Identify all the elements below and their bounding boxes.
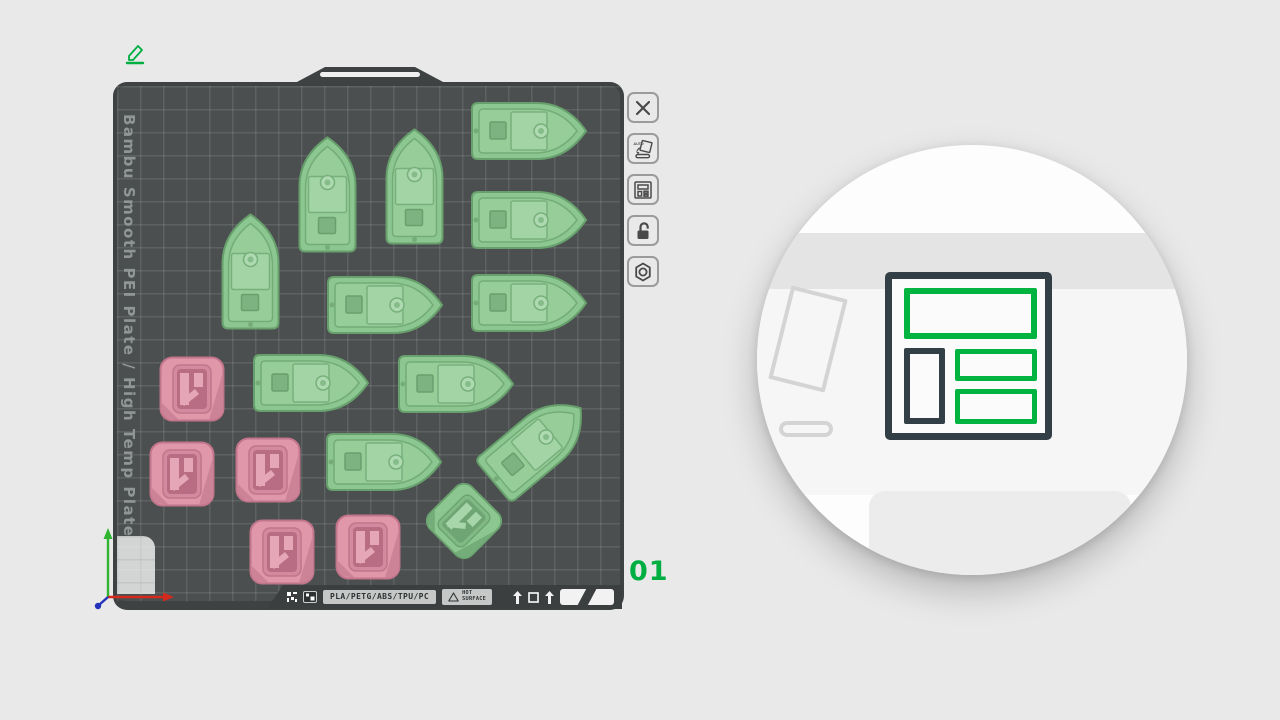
filament-compat-label: PLA/PETG/ABS/TPU/PC: [323, 590, 436, 604]
warning-triangle-icon: [448, 592, 459, 602]
plate-object-benchy-boat[interactable]: [394, 353, 517, 415]
plate-handle-tab: [295, 67, 445, 83]
magnifier-callout: [757, 145, 1187, 575]
ghost-auto-orient-bar: [779, 421, 833, 437]
arrange-icon-left-rect: [904, 348, 945, 424]
plate-footer: PLA/PETG/ABS/TPU/PC HOT SURFACE: [267, 585, 622, 609]
build-plate[interactable]: Bambu Smooth PEI Plate / High Temp Plate…: [113, 82, 624, 610]
qr-marker-icon: [287, 592, 297, 602]
lock-open-icon: [631, 219, 655, 243]
auto-orient-button[interactable]: AUTO: [627, 133, 659, 164]
plate-object-benchy-boat[interactable]: [219, 211, 281, 334]
z-axis-dot: [95, 603, 101, 609]
hot-surface-line2: SURFACE: [462, 597, 486, 603]
lift-arrow-icon: [545, 591, 554, 604]
qr-code-icon: [303, 591, 317, 603]
bambu-studio-plate-view: { "header": { "edit_icon": "pencil-icon"…: [0, 0, 1280, 720]
arrange-icon: [631, 178, 655, 202]
plate-object-benchy-boat[interactable]: [249, 352, 372, 414]
lift-arrow-icon: [513, 591, 522, 604]
filament-compat-text: PLA/PETG/ABS/TPU/PC: [330, 592, 429, 601]
plate-object-benchy-boat[interactable]: [323, 274, 446, 336]
plate-settings-button[interactable]: [627, 256, 659, 287]
plate-corner-mark: [560, 589, 614, 605]
plate-number-badge: 01: [629, 556, 669, 587]
plate-object-calibration-cube[interactable]: [335, 514, 401, 580]
plate-object-benchy-boat[interactable]: [467, 272, 590, 334]
plate-handle-slot: [320, 72, 420, 77]
edit-plate-name-pencil-icon[interactable]: [123, 40, 147, 66]
plate-object-calibration-cube[interactable]: [159, 356, 225, 422]
lock-plate-button[interactable]: [627, 215, 659, 246]
y-axis-arrow: [104, 528, 113, 539]
close-plate-button[interactable]: [627, 92, 659, 123]
magnified-arrange-icon: [885, 272, 1052, 440]
plate-outline-icon: [528, 592, 539, 603]
hot-surface-warning: HOT SURFACE: [442, 589, 492, 605]
plate-object-benchy-boat[interactable]: [296, 134, 358, 257]
arrange-icon-right-rect-2: [955, 389, 1037, 424]
plate-objects-layer: [117, 86, 620, 601]
arrange-icon-top-rect: [904, 288, 1037, 339]
auto-orient-icon: AUTO: [631, 137, 655, 161]
ghost-lock-icon: [869, 491, 1131, 575]
plate-object-calibration-cube[interactable]: [249, 519, 315, 585]
plate-object-calibration-cube[interactable]: [235, 437, 301, 503]
plate-object-calibration-cube[interactable]: [149, 441, 215, 507]
arrange-plate-button[interactable]: [627, 174, 659, 205]
plate-object-benchy-boat[interactable]: [467, 100, 590, 162]
arrange-icon-right-rect-1: [955, 349, 1037, 381]
plate-settings-icon: [631, 260, 655, 284]
plate-corner-mark-slash: [576, 589, 597, 605]
plate-object-benchy-boat[interactable]: [322, 431, 445, 493]
plate-object-benchy-boat[interactable]: [467, 189, 590, 251]
plate-toolbar: AUTO: [627, 92, 659, 287]
auto-orient-label: AUTO: [634, 142, 644, 146]
close-icon: [631, 96, 655, 120]
plate-object-benchy-boat[interactable]: [383, 126, 445, 249]
